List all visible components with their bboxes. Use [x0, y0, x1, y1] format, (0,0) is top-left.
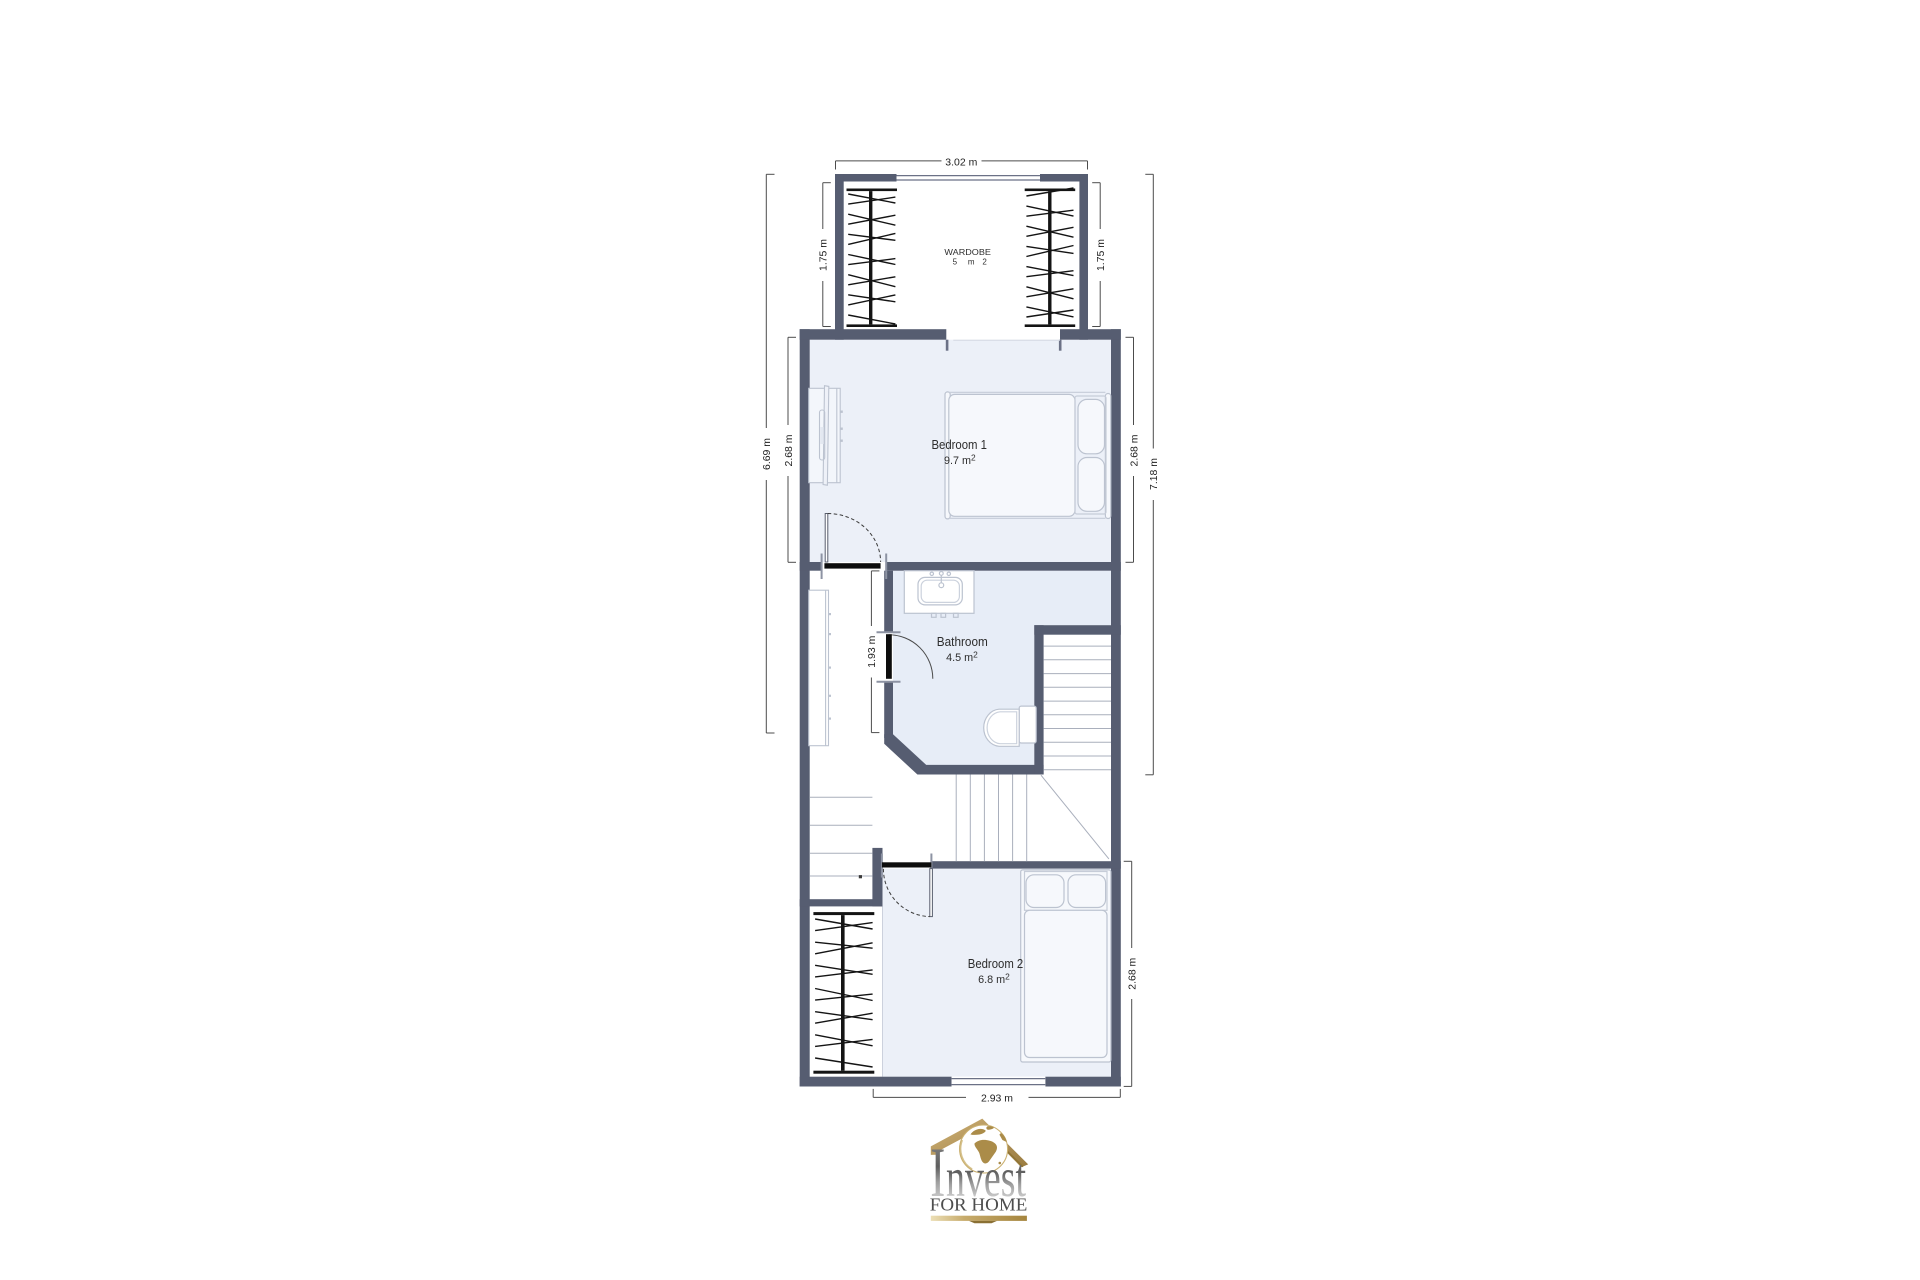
svg-text:2.68 m: 2.68 m — [783, 434, 795, 466]
svg-text:Bedroom 2: Bedroom 2 — [968, 956, 1024, 971]
svg-text:WARDOBE: WARDOBE — [944, 248, 991, 257]
svg-text:1.93 m: 1.93 m — [866, 635, 878, 667]
svg-text:2.68 m: 2.68 m — [1127, 957, 1139, 989]
svg-text:1.75 m: 1.75 m — [818, 239, 830, 271]
svg-text:2: 2 — [982, 257, 987, 266]
svg-text:1.75 m: 1.75 m — [1095, 239, 1107, 271]
svg-text:7.18 m: 7.18 m — [1148, 458, 1160, 490]
svg-text:6.69 m: 6.69 m — [761, 438, 773, 470]
svg-text:2.68 m: 2.68 m — [1128, 434, 1140, 466]
svg-text:5: 5 — [953, 257, 958, 266]
svg-text:Bathroom: Bathroom — [937, 634, 988, 649]
svg-text:3.02 m: 3.02 m — [945, 156, 977, 168]
svg-text:Bedroom 1: Bedroom 1 — [931, 437, 987, 452]
svg-text:2.93 m: 2.93 m — [981, 1093, 1013, 1105]
svg-text:FOR HOME: FOR HOME — [930, 1195, 1028, 1215]
svg-text:m: m — [968, 257, 975, 266]
